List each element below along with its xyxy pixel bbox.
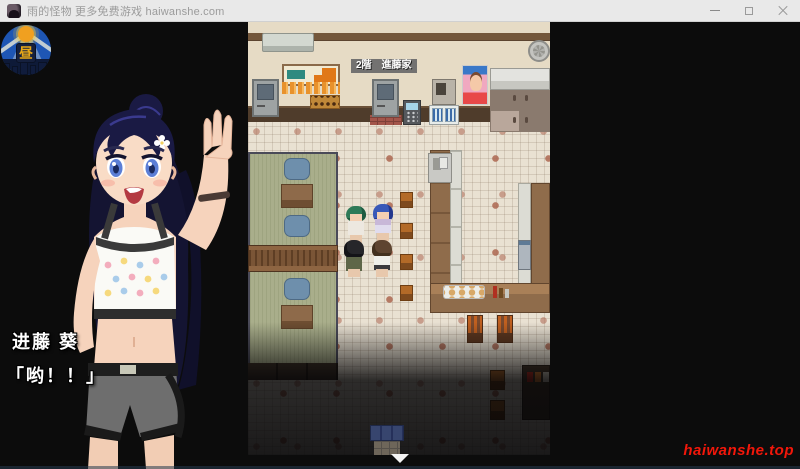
time-label-box: 昼	[16, 43, 36, 63]
floor-cushion	[284, 158, 310, 180]
floor-cushion	[284, 278, 310, 300]
player-character-back	[371, 240, 393, 277]
wooden-railing	[248, 245, 338, 272]
kitchen-cabinets	[490, 90, 550, 132]
app-icon	[7, 4, 21, 18]
time-label: 昼	[19, 46, 33, 60]
close-icon	[778, 6, 788, 16]
stool	[490, 400, 505, 420]
character-portrait	[28, 85, 240, 469]
dialog-speaker-name: 进藤 葵	[12, 328, 79, 354]
entrance-doormat	[370, 425, 404, 441]
window-titlebar: 雨的怪物 更多免费游戏 haiwanshe.com	[0, 0, 800, 22]
low-table	[281, 305, 313, 329]
food-plates	[443, 285, 485, 299]
minimize-button[interactable]	[698, 0, 732, 22]
stool	[490, 370, 505, 390]
portrait-illustration	[28, 85, 240, 469]
menu-slips	[282, 82, 340, 94]
entrance-tiles	[374, 441, 400, 455]
game-viewport[interactable]: 昼 2階 進藤家	[0, 22, 800, 469]
counter-stool	[400, 223, 413, 239]
pin-up-poster	[462, 65, 488, 105]
door-left	[252, 79, 279, 117]
counter-stool	[400, 285, 413, 301]
floor-sign: 2階 進藤家	[351, 59, 417, 73]
bottle-crate	[310, 95, 340, 109]
counter-appliance	[518, 240, 531, 270]
condiment-bottles	[493, 285, 513, 298]
maximize-button[interactable]	[732, 0, 766, 22]
door-center	[372, 79, 399, 117]
dialog-line: 「哟！！」	[6, 362, 106, 388]
coffee-machine	[432, 79, 456, 105]
window-controls	[698, 0, 800, 22]
watermark: haiwanshe.top	[683, 442, 794, 459]
kitchen-counter	[490, 68, 550, 90]
counter-stool	[400, 192, 413, 208]
dining-chair	[467, 315, 483, 343]
floor-cushion	[284, 215, 310, 237]
dining-chair	[497, 315, 513, 343]
counter-stool	[400, 254, 413, 270]
maximize-icon	[745, 7, 753, 15]
air-conditioner	[262, 33, 314, 52]
npc-black-hair-back	[343, 240, 365, 277]
low-table	[281, 184, 313, 208]
time-of-day-badge: 昼	[1, 25, 51, 75]
sun-icon	[18, 26, 34, 42]
game-map: 2階 進藤家	[248, 22, 550, 455]
drink-fridge	[429, 105, 459, 125]
close-button[interactable]	[766, 0, 800, 22]
payment-terminal	[403, 100, 421, 125]
wall-fan	[528, 40, 550, 62]
npc-blue-hair	[372, 204, 394, 241]
tatami-step	[248, 363, 338, 380]
window-title: 雨的怪物 更多免费游戏 haiwanshe.com	[27, 3, 225, 19]
sink	[428, 153, 452, 183]
shelf-counter	[522, 365, 550, 420]
npc-green-hair	[345, 206, 367, 243]
minimize-icon	[710, 10, 720, 11]
exit-arrow-icon	[391, 454, 409, 463]
